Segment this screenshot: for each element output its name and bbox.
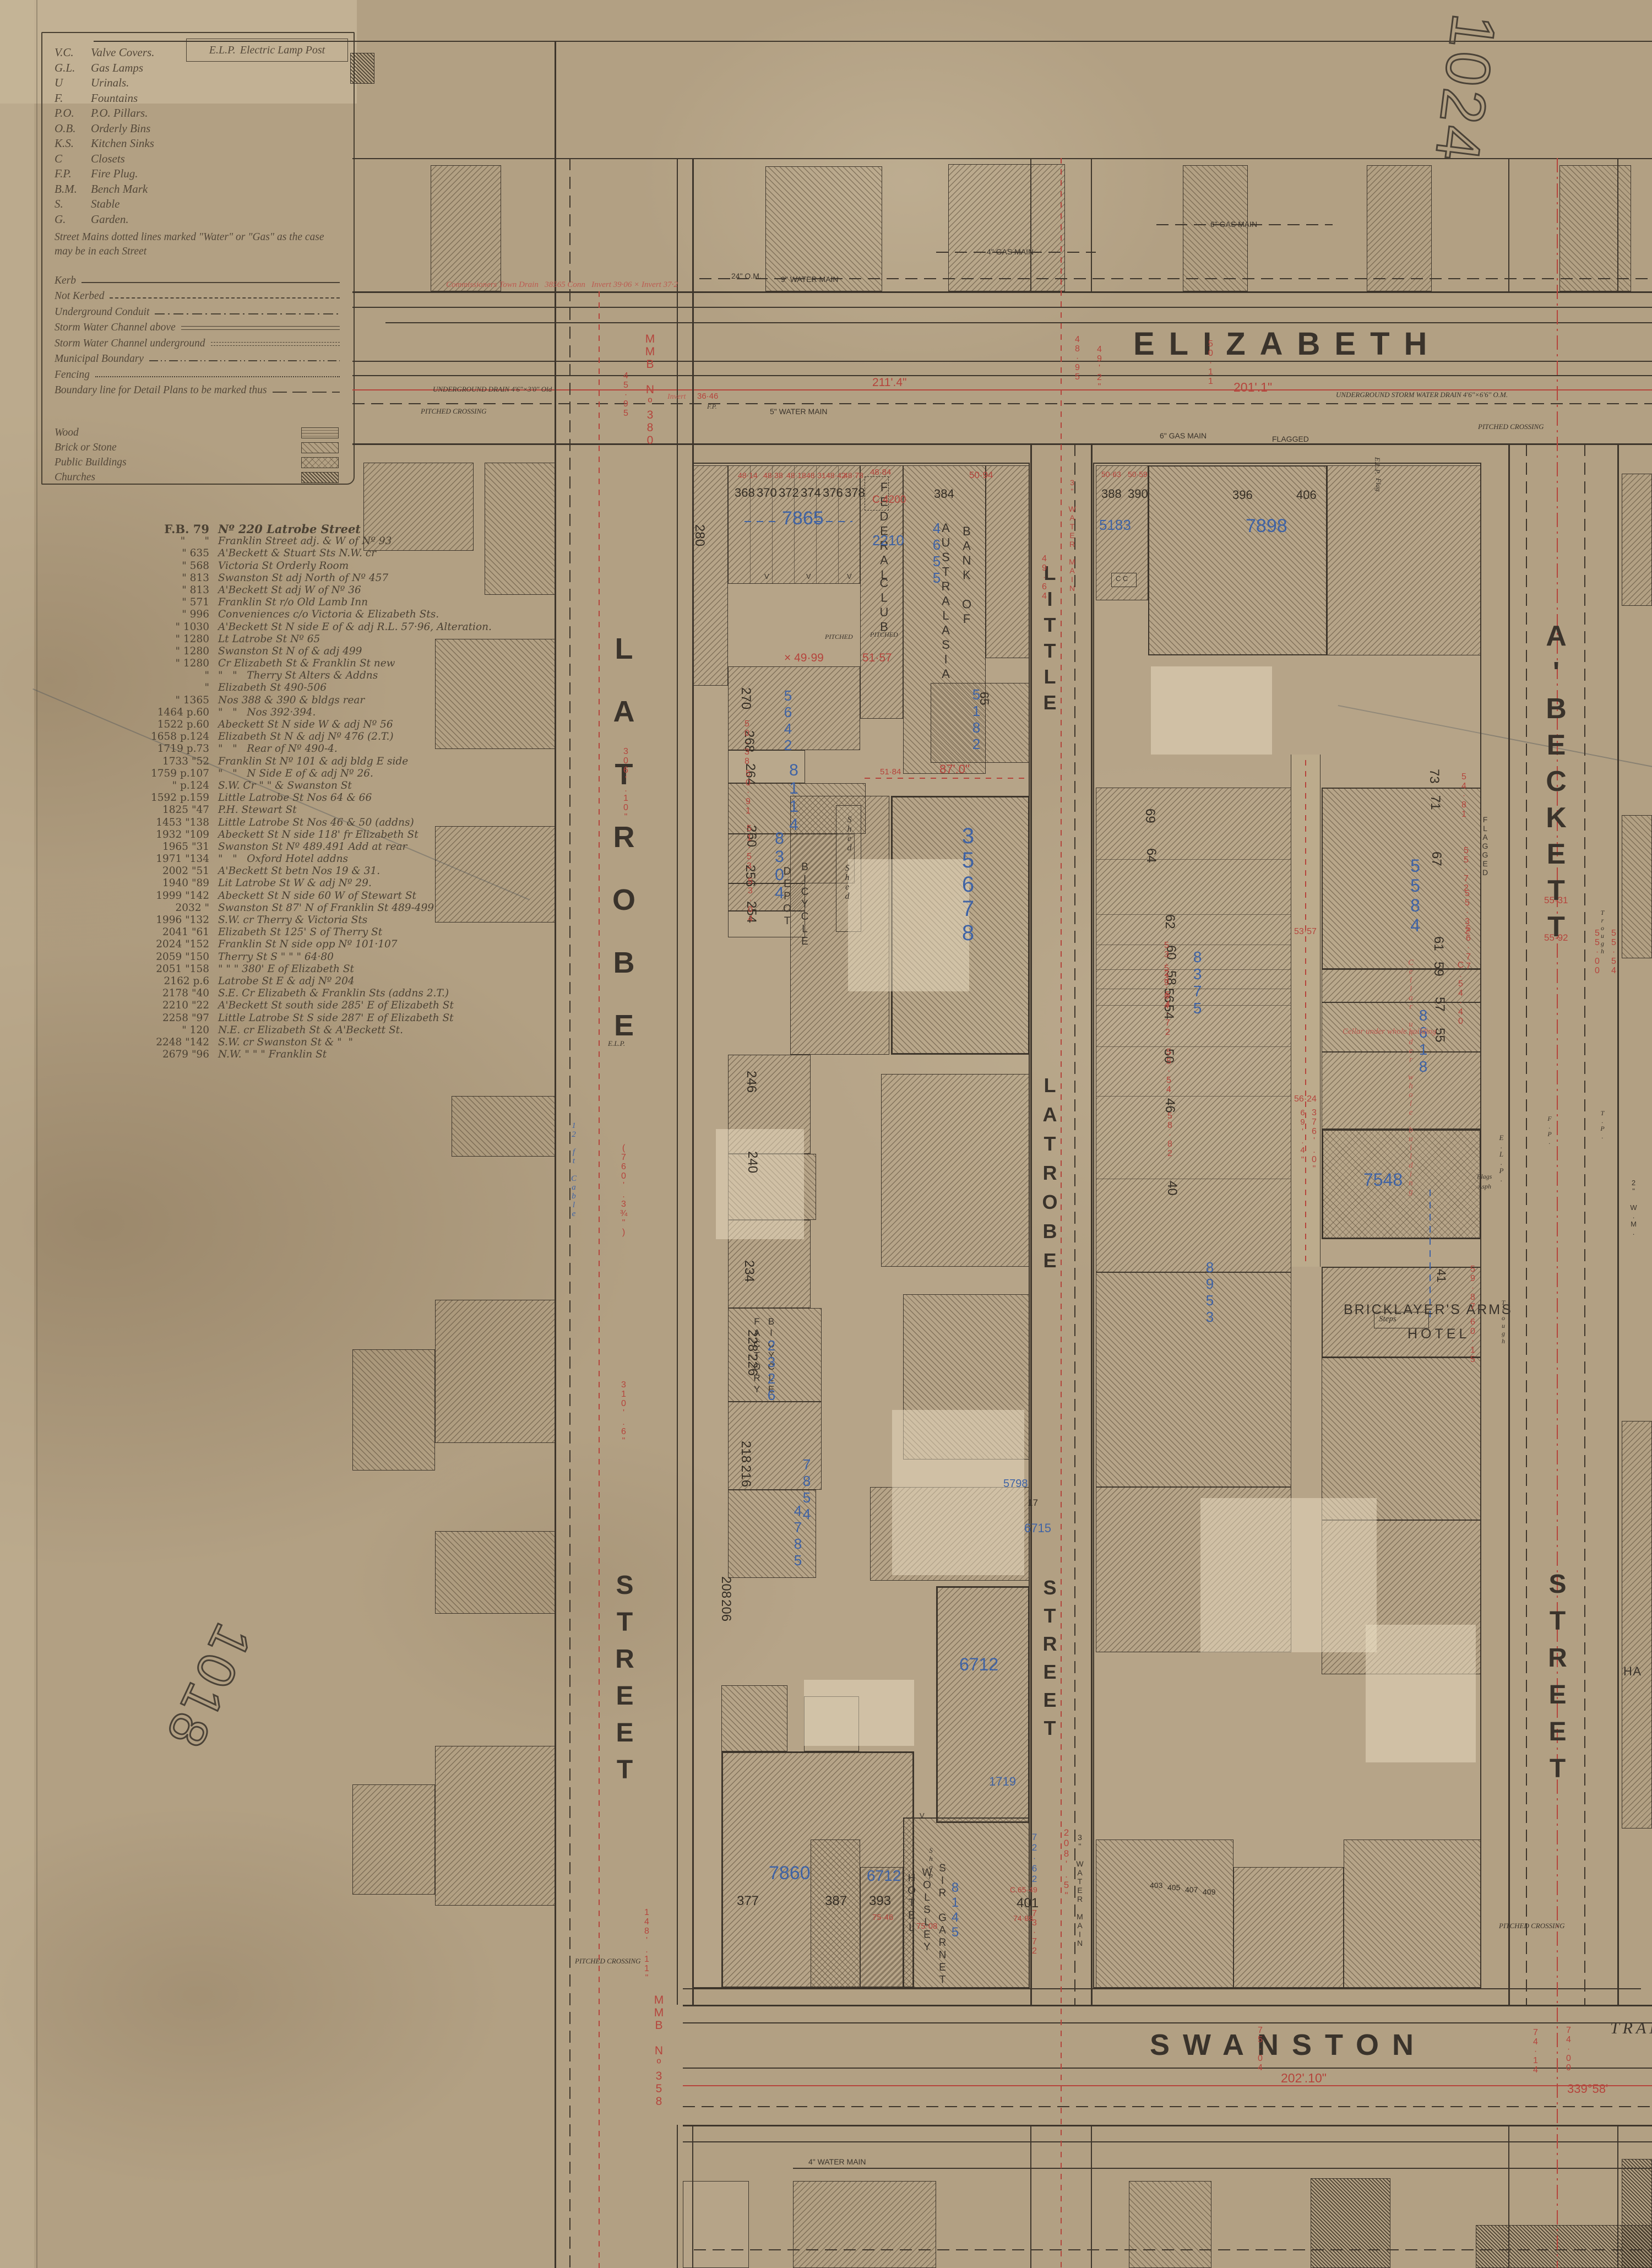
survey-index-fieldbook: 1825 "47 (117, 804, 218, 816)
survey-index-fieldbook: 1996 "132 (117, 914, 218, 926)
survey-index-fieldbook: 1592 p.159 (117, 792, 218, 804)
survey-index-fieldbook: " 568 (117, 560, 218, 572)
street-name-label: ELIZABETH (1133, 328, 1441, 360)
legend-abbr: S. (55, 197, 91, 211)
survey-number: 5642 (781, 687, 795, 753)
legend-swatches: WoodBrick or StonePublic BuildingsChurch… (55, 425, 342, 485)
dimension-annotation: 48·78 (844, 471, 863, 479)
legend-swatch-row: Public Buildings (55, 455, 342, 470)
survey-index-row: " 120N.E. cr Elizabeth St & A'Beckett St… (117, 1024, 502, 1037)
house-number: 401 (1017, 1897, 1039, 1910)
legend-line-style-label: Kerb (55, 275, 76, 287)
house-number: 378 (845, 487, 865, 499)
street-line (1091, 158, 1092, 291)
legend-swatch-row: Brick or Stone (55, 440, 342, 455)
dimension-annotation: 50·63 (1101, 470, 1121, 478)
building-footprint (1322, 1358, 1481, 1520)
utility-annotation: C C (1116, 575, 1128, 582)
dimension-annotation: 339°58' (1567, 2083, 1608, 2095)
building-name-label: SIR GARNET (937, 1863, 948, 1987)
survey-dimension-line (745, 521, 781, 522)
legend-swatch-sample (301, 472, 339, 483)
house-number: 280 (693, 524, 706, 546)
building-footprint (435, 639, 555, 749)
utility-annotation: Asph (1478, 1183, 1491, 1190)
survey-index-fieldbook: " 1030 (117, 621, 218, 633)
legend-abbr: V.C. (55, 46, 91, 59)
survey-index-row: 1733 "52Franklin St Nº 101 & adj bldg E … (117, 756, 502, 768)
utility-annotation: PITCHED CROSSING (575, 1957, 641, 1965)
legend-abbr-label: Kitchen Sinks (91, 137, 154, 150)
survey-number: 2210 (872, 533, 904, 547)
building-name-label: WOLSLEY (922, 1867, 932, 1954)
survey-index-panel: F.B. 79Nº 220 Latrobe Street" "Franklin … (117, 523, 502, 1061)
survey-index-fieldbook: " 1280 (117, 658, 218, 670)
survey-index-description: Franklin St r/o Old Lamb Inn (218, 596, 502, 609)
house-number: 409 (1203, 1888, 1215, 1896)
building-footprint (1344, 1840, 1481, 1988)
survey-index-fieldbook: 1759 p.107 (117, 768, 218, 780)
dimension-annotation: 74·00 (1564, 2026, 1573, 2072)
house-number: 393 (869, 1895, 891, 1908)
legend-swatch-label: Churches (55, 471, 95, 484)
survey-index-fieldbook: " 1280 (117, 633, 218, 645)
survey-index-description: A'Beckett St south side 285' E of Elizab… (218, 1000, 502, 1012)
legend-abbreviation-row: F.P.Fire Plug. (55, 166, 341, 182)
main-annotation-line (683, 2085, 1652, 2086)
street-line (1091, 444, 1093, 2005)
survey-index-row: 2162 p.6Latrobe St E & adj Nº 204 (117, 975, 502, 987)
street-line (683, 2068, 1652, 2069)
building-footprint (431, 165, 501, 291)
legend-abbr-label: Orderly Bins (91, 122, 150, 135)
utility-annotation: 3" WATER MAIN (1076, 1833, 1084, 1947)
house-number: 69 (1143, 809, 1156, 823)
survey-index-description: Elizabeth St 125' S of Therry St (218, 926, 502, 938)
legend-abbr: G.L. (55, 61, 91, 75)
dimension-annotation: 51·53 (745, 824, 753, 871)
street-line (1096, 914, 1291, 915)
legend-line-style-sample (181, 326, 340, 330)
legend-abbr: P.O. (55, 106, 91, 120)
survey-number: 7865 (782, 509, 824, 528)
building-footprint (793, 2181, 936, 2268)
survey-number: 5182 (969, 686, 983, 752)
house-number: 368 (735, 487, 755, 499)
house-number: 396 (1232, 489, 1253, 501)
survey-index-fieldbook: 1940 "89 (117, 877, 218, 889)
survey-index-description: N.E. cr Elizabeth St & A'Beckett St. (218, 1024, 502, 1037)
legend-abbreviation-row: CClosets (55, 151, 341, 167)
survey-index-fieldbook: " (117, 682, 218, 694)
street-line (352, 361, 1652, 362)
legend-abbreviations: V.C.Valve Covers.G.L.Gas LampsUUrinals.F… (55, 45, 341, 227)
building-footprint (1129, 2181, 1211, 2268)
utility-annotation: 4" WATER MAIN (808, 2158, 866, 2166)
survey-number: 6712 (959, 1656, 998, 1673)
legend-abbr: B.M. (55, 182, 91, 196)
building-footprint (352, 1349, 435, 1471)
dimension-annotation: 87'.0" (939, 763, 970, 775)
survey-index-description: Little Latrobe St Nos 64 & 66 (218, 792, 502, 804)
dimension-annotation: 59·87 (1468, 1265, 1477, 1311)
legend-abbr-label: Stable (91, 197, 120, 211)
legend-abbr-label: P.O. Pillars. (91, 106, 148, 120)
survey-index-fieldbook: 1733 "52 (117, 756, 218, 768)
building-footprint (435, 1300, 555, 1443)
building-footprint (765, 166, 882, 291)
faded-light-patch (1366, 1625, 1476, 1762)
survey-index-description: P.H. Stewart St (218, 804, 502, 816)
street-line (750, 465, 751, 584)
street-line (555, 41, 556, 2268)
legend-line-style-row: Storm Water Channel above (55, 318, 342, 334)
survey-index-fieldbook: 2024 "152 (117, 938, 218, 951)
legend-abbr: G. (55, 213, 91, 226)
legend-abbreviation-row: UUrinals. (55, 75, 341, 91)
street-line (94, 41, 1652, 42)
dimension-annotation: 55·92 (1544, 933, 1568, 942)
utility-annotation: FLAGGED (1481, 815, 1489, 877)
survey-number: 2326 (764, 1337, 779, 1403)
survey-index-description: S.W. cr Swanston St & " " (218, 1037, 502, 1049)
dimension-annotation: 54·72 (1163, 990, 1172, 1037)
dimension-annotation: 58·82 (1165, 1111, 1174, 1158)
survey-index-row: 2059 "150Therry St S " " " 64·80 (117, 951, 502, 963)
building-footprint (721, 1685, 787, 1751)
street-line (1617, 158, 1618, 291)
house-number: 403 (1150, 1881, 1162, 1889)
survey-index-description: N.W. " " " Franklin St (218, 1049, 502, 1061)
building-footprint (860, 1867, 903, 1988)
legend-line-style-row: Fencing (55, 365, 342, 381)
legend-swatch-label: Public Buildings (55, 457, 127, 469)
house-number: 71 (1428, 795, 1442, 810)
house-number: 46 (1163, 1098, 1176, 1113)
street-line (677, 158, 678, 2005)
building-footprint (452, 1096, 555, 1157)
utility-annotation: V (764, 573, 769, 580)
dimension-annotation: 201'.1" (1233, 381, 1272, 394)
building-footprint (986, 465, 1030, 658)
dimension-annotation: 50·59 (1128, 470, 1148, 478)
utility-annotation: UNDERGROUND STORM WATER DRAIN 4'6"×6'6" … (1336, 391, 1508, 398)
building-footprint-dark (1476, 2225, 1652, 2268)
legend-line-style-row: Boundary line for Detail Plans to be mar… (55, 381, 342, 397)
house-number: 40 (1165, 1181, 1178, 1196)
survey-index-description: S.E. Cr Elizabeth & Franklin Sts (addns … (218, 987, 502, 1000)
street-name-label: LATROBE (1040, 1074, 1059, 1278)
sheet-number-top-right: 1024 (1421, 10, 1510, 168)
utility-annotation: Steps (1379, 1315, 1396, 1323)
street-name-label: STREET (1544, 1570, 1571, 1791)
survey-index-row: " p.124S.W. Cr " " & Swanston St (117, 780, 502, 792)
legend-swatch-row: Wood (55, 425, 342, 440)
faded-light-patch (716, 1129, 804, 1239)
house-number: 67 (1430, 851, 1443, 866)
building-footprint (1322, 788, 1481, 969)
dimension-annotation: 74·88 (1013, 1914, 1033, 1922)
survey-index-fieldbook: " 1365 (117, 694, 218, 707)
survey-index-fieldbook: F.B. 79 (117, 523, 218, 535)
survey-index-fieldbook: 2210 "22 (117, 1000, 218, 1012)
utility-annotation: Flags (1477, 1173, 1492, 1180)
utility-annotation: 9" WATER MAIN (781, 275, 839, 283)
utility-annotation: E.L.P. (1374, 457, 1381, 474)
survey-number: 8145 (948, 1880, 961, 1940)
sheet-number-left: 1018 (153, 1615, 263, 1759)
survey-index-fieldbook: 2041 "61 (117, 926, 218, 938)
street-line (1508, 2125, 1509, 2268)
survey-index-fieldbook: 1965 "31 (117, 841, 218, 853)
dimension-annotation: 74·14 (1531, 2028, 1540, 2075)
survey-index-description: A'Beckett St N side E of & adj R.L. 57·9… (218, 621, 502, 633)
legend-line-style-label: Fencing (55, 369, 90, 381)
street-line (1617, 444, 1619, 2005)
utility-annotation: FLAGGED (1272, 435, 1309, 443)
dimension-annotation: (760'.3¾") (619, 1143, 628, 1237)
legend-line-style-label: Municipal Boundary (55, 353, 144, 365)
legend-panel: E.L.P. Electric Lamp Post V.C.Valve Cove… (41, 32, 355, 485)
survey-index-row: 2178 "40S.E. Cr Elizabeth & Franklin Sts… (117, 987, 502, 1000)
legend-line-style-row: Underground Conduit (55, 302, 342, 318)
dimension-annotation: 202'.10" (1281, 2072, 1327, 2085)
street-line (683, 2005, 1652, 2006)
street-line (1030, 444, 1032, 2005)
survey-index-description: Swanston St adj North of Nº 457 (218, 572, 502, 584)
paper-left-edge (0, 0, 34, 2268)
survey-index-row: " 571Franklin St r/o Old Lamb Inn (117, 596, 502, 609)
building-name-label: HOTEL (1408, 1327, 1470, 1341)
utility-annotation: PITCHED (870, 631, 898, 638)
faded-light-patch (1151, 666, 1272, 755)
survey-number: 7860 (769, 1864, 811, 1882)
house-number: 270 (739, 687, 752, 709)
survey-index-fieldbook: " 120 (117, 1024, 218, 1037)
survey-number: 35678 (957, 824, 979, 945)
street-line (1096, 1096, 1291, 1097)
survey-index-description: Conveniences c/o Victoria & Elizabeth St… (218, 609, 502, 621)
survey-index-fieldbook: 2032 " (117, 902, 218, 914)
legend-line-styles: KerbNot KerbedUnderground ConduitStorm W… (55, 271, 342, 397)
dimension-annotation: 36·46 (697, 392, 718, 400)
dimension-annotation: 49'2" (1095, 345, 1104, 392)
dimension-annotation: 306'.10" (621, 747, 630, 822)
survey-number: 6712 (867, 1868, 901, 1884)
utility-annotation: 24" O.M. (731, 272, 762, 280)
building-footprint (1096, 788, 1291, 1272)
utility-annotation: Shed (845, 815, 854, 853)
legend-line-style-sample (273, 392, 340, 393)
house-number: 216 (739, 1465, 752, 1487)
building-name-label: HOTEL (906, 1873, 917, 1935)
house-number: 374 (801, 487, 821, 499)
house-number: 208 (719, 1576, 732, 1598)
building-footprint (1096, 1272, 1291, 1487)
survey-index-fieldbook: 2002 "51 (117, 865, 218, 877)
house-number: 17 (1028, 1498, 1038, 1507)
main-annotation-line (1305, 760, 1306, 1261)
survey-index-fieldbook: 2162 p.6 (117, 975, 218, 987)
survey-number: 7548 (1363, 1171, 1403, 1189)
utility-annotation: Trough (1500, 1299, 1507, 1345)
survey-index-fieldbook: " 813 (117, 584, 218, 596)
survey-number: 72·62 (1030, 1832, 1039, 1884)
survey-index-fieldbook: 1522 p.60 (117, 719, 218, 731)
main-annotation-line (1557, 158, 1558, 2268)
legend-line-style-sample (95, 373, 340, 377)
survey-index-fieldbook: " 635 (117, 547, 218, 560)
dimension-annotation: 50·91 (743, 769, 752, 816)
survey-index-row: 1592 p.159Little Latrobe St Nos 64 & 66 (117, 792, 502, 804)
utility-annotation: Shop (927, 1846, 934, 1879)
legend-line-style-row: Not Kerbed (55, 287, 342, 303)
dimension-annotation: 3" WATER MAIN (1068, 478, 1076, 593)
house-number: 62 (1163, 914, 1176, 929)
dimension-annotation: 48·31 (806, 471, 826, 479)
house-number: 387 (825, 1895, 847, 1908)
survey-index-row: 1759 p.107" " N Side E of & adj Nº 26. (117, 768, 502, 780)
survey-index-row: 2051 "158" " " 380' E of Elizabeth St (117, 963, 502, 975)
dimension-annotation: 55·54 (1609, 929, 1618, 975)
building-footprint (435, 1531, 555, 1614)
survey-index-fieldbook: 1719 p.73 (117, 743, 218, 755)
survey-index-row: 2679 "96N.W. " " " Franklin St (117, 1049, 502, 1061)
survey-index-fieldbook: 2258 "97 (117, 1012, 218, 1024)
building-footprint (693, 465, 728, 686)
street-line (1584, 444, 1585, 2005)
legend-swatch-sample (301, 457, 339, 468)
survey-index-row: " 813A'Beckett St adj W of Nº 36 (117, 584, 502, 596)
paper-crease (36, 0, 37, 2268)
dimension-annotation: 50·38 (742, 719, 751, 766)
dimension-annotation: 148'.11" (642, 1908, 651, 1983)
street-line (1074, 444, 1075, 2005)
drain-annotation: Cellar under whole building (1343, 1028, 1436, 1036)
legend-abbreviation-row: G.Garden. (55, 212, 341, 227)
dimension-annotation: 55·31 (1544, 896, 1568, 905)
legend-abbreviation-row: B.M.Bench Mark (55, 182, 341, 197)
survey-number: 8114 (785, 761, 802, 834)
legend-abbr: F. (55, 91, 91, 105)
utility-annotation: V (806, 573, 811, 580)
street-line (352, 403, 1652, 404)
legend-abbreviation-row: O.B.Orderly Bins (55, 121, 341, 137)
house-number: 57 (1433, 997, 1446, 1012)
house-number: 246 (745, 1071, 758, 1093)
legend-abbreviation-row: K.S.Kitchen Sinks (55, 136, 341, 151)
building-footprint (352, 1784, 435, 1895)
survey-index-description: Little Latrobe St S side 287' E of Eliza… (218, 1012, 502, 1024)
street-line (1030, 158, 1031, 291)
drain-annotation: Cellar under whole building (1406, 958, 1415, 1196)
survey-number: 8304 (771, 829, 787, 902)
utility-annotation: PITCHED (825, 633, 853, 640)
dimension-annotation: 50·94 (969, 470, 993, 480)
street-line (692, 158, 694, 2005)
dimension-annotation: 54·81 (1459, 772, 1468, 819)
dimension-annotation: 208'.5" (1062, 1827, 1071, 1901)
dimension-annotation: 75·46 (872, 1913, 893, 1922)
legend-abbr-label: Valve Covers. (91, 46, 154, 59)
street-line (772, 465, 773, 584)
dimension-annotation: 48·95 (1073, 335, 1082, 382)
utility-annotation: 6" GAS MAIN (1210, 220, 1257, 228)
survey-number: 12 ft Cable (569, 1121, 578, 1218)
street-line (1096, 1179, 1291, 1179)
dimension-annotation: 376'.0" (1309, 1108, 1318, 1174)
survey-index-fieldbook: " " (117, 535, 218, 547)
legend-swatch-row: Churches (55, 470, 342, 485)
legend-line-style-sample (155, 313, 340, 314)
building-footprint (881, 1074, 1030, 1267)
house-number: 64 (1144, 848, 1158, 863)
utility-annotation: 2" W.M. (1630, 1179, 1637, 1236)
building-footprint (435, 826, 555, 923)
survey-index-row: 2024 "152Franklin St N side opp Nº 101·1… (117, 938, 502, 951)
building-footprint (1622, 474, 1652, 606)
survey-number: 5798 (1003, 1478, 1028, 1489)
legend-abbreviation-row: V.C.Valve Covers. (55, 45, 341, 61)
dimension-annotation: 48·42 (826, 471, 846, 479)
survey-index-fieldbook: 1932 "109 (117, 829, 218, 841)
street-line (683, 2106, 1652, 2107)
survey-index-fieldbook: 2051 "158 (117, 963, 218, 975)
dimension-annotation: C.4200 (872, 495, 906, 505)
street-line (692, 2125, 693, 2268)
street-line (683, 2022, 1652, 2023)
house-number: 377 (737, 1895, 759, 1908)
utility-annotation: PITCHED CROSSING (421, 408, 487, 415)
street-line (793, 2168, 1652, 2169)
house-number: 390 (1128, 488, 1148, 500)
legend-note: Street Mains dotted lines marked "Water"… (55, 230, 341, 259)
street-line (1508, 444, 1510, 2005)
legend-line-style-sample (211, 342, 340, 346)
street-line (683, 2125, 1652, 2126)
utility-annotation: UNDERGROUND DRAIN 4'6"×3'0" Old (433, 386, 552, 393)
survey-number: 4785 (791, 1502, 805, 1569)
house-number: 228 (746, 1330, 759, 1352)
dimension-annotation: 48·18 (786, 471, 806, 479)
street-line (1526, 444, 1527, 2005)
legend-abbr-label: Garden. (91, 213, 129, 226)
house-number: 240 (746, 1151, 759, 1173)
survey-index-fieldbook: 1464 p.60 (117, 707, 218, 719)
legend-abbr: U (55, 76, 91, 90)
building-footprint (363, 463, 474, 551)
survey-index-row: " 568Victoria St Orderly Room (117, 560, 502, 572)
street-line (677, 2125, 678, 2268)
survey-index-row: " 996Conveniences c/o Victoria & Elizabe… (117, 609, 502, 621)
drain-annotation: Invert (667, 393, 686, 401)
faded-light-patch (892, 1410, 1024, 1575)
survey-index-fieldbook: " 813 (117, 572, 218, 584)
survey-index-description: Franklin St Nº 101 & adj bldg E side (218, 756, 502, 768)
legend-line-style-label: Underground Conduit (55, 306, 149, 318)
dimension-annotation: 51·57 (862, 652, 892, 664)
utility-annotation: PITCHED CROSSING (1499, 1922, 1565, 1929)
street-line (1096, 859, 1291, 860)
faded-light-patch (848, 859, 969, 991)
dimension-annotation: 45·95 (621, 371, 630, 418)
legend-swatch-sample (301, 442, 339, 453)
house-number: 73 (1427, 769, 1441, 784)
street-name-label: STREET (611, 1571, 638, 1792)
main-annotation-line (599, 291, 600, 2268)
utility-annotation: Flag (1375, 478, 1382, 492)
building-footprint (1322, 1052, 1481, 1129)
